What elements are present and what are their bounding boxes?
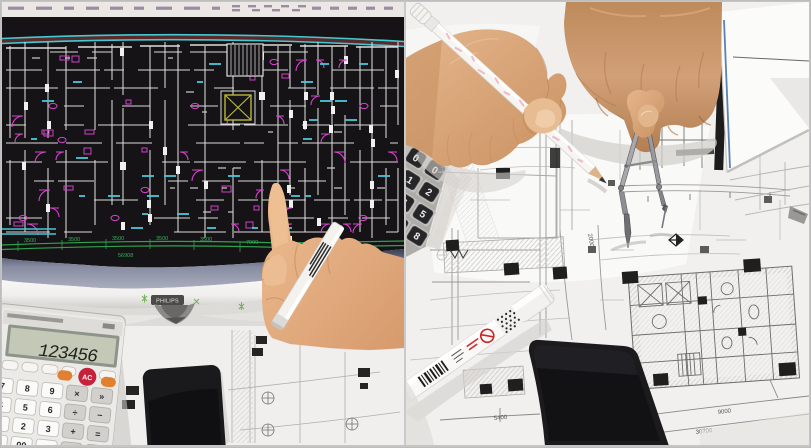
svg-text:5400: 5400	[494, 415, 508, 422]
svg-text:3: 3	[45, 424, 51, 434]
svg-text:3500: 3500	[156, 236, 168, 242]
svg-text:+: +	[70, 426, 76, 436]
svg-text:AC: AC	[82, 374, 93, 382]
svg-text:PHILIPS: PHILIPS	[156, 299, 179, 305]
svg-text:3500: 3500	[112, 236, 124, 242]
svg-text:»: »	[99, 391, 105, 401]
svg-text:3500: 3500	[200, 237, 212, 243]
svg-text:5: 5	[22, 402, 28, 412]
svg-text:=: =	[95, 429, 101, 439]
svg-text:9: 9	[49, 386, 55, 396]
svg-text:7000: 7000	[246, 240, 258, 246]
svg-text:2: 2	[20, 421, 26, 431]
svg-text:3500: 3500	[24, 238, 36, 244]
svg-text:8: 8	[24, 383, 30, 393]
svg-text:6: 6	[47, 405, 53, 415]
svg-text:56908: 56908	[118, 253, 133, 259]
svg-text:−: −	[97, 410, 103, 420]
svg-text:×: ×	[74, 389, 80, 399]
svg-text:3500: 3500	[68, 237, 80, 243]
